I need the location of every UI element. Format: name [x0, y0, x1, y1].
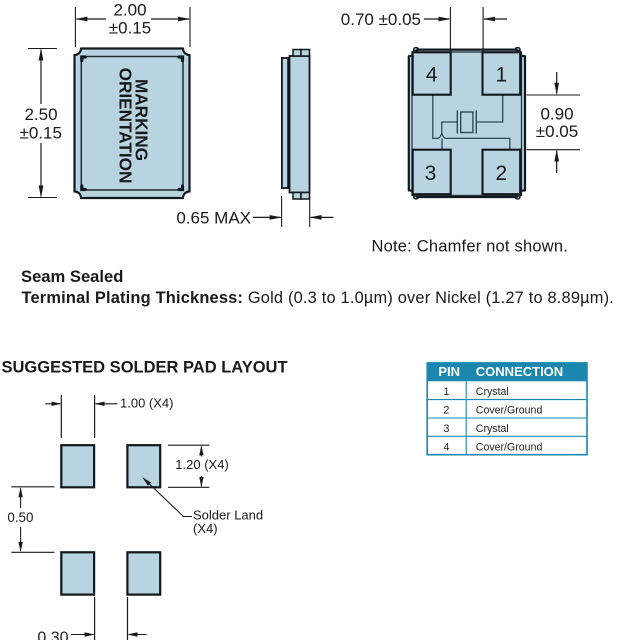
- svg-text:0.30: 0.30: [37, 630, 68, 640]
- svg-text:Terminal Plating Thickness: Go: Terminal Plating Thickness: Gold (0.3 to…: [22, 289, 615, 307]
- svg-text:1.00 (X4): 1.00 (X4): [120, 396, 173, 411]
- svg-text:1: 1: [444, 386, 450, 398]
- svg-text:2.00: 2.00: [113, 0, 146, 19]
- svg-text:2: 2: [495, 162, 507, 185]
- svg-text:1: 1: [495, 64, 507, 87]
- svg-text:±0.15: ±0.15: [19, 123, 61, 142]
- svg-text:0.90: 0.90: [540, 105, 573, 124]
- svg-text:0.65 MAX: 0.65 MAX: [176, 209, 251, 228]
- svg-text:2: 2: [444, 405, 450, 417]
- svg-text:CONNECTION: CONNECTION: [476, 364, 563, 379]
- svg-text:2.50: 2.50: [24, 105, 57, 124]
- svg-text:0.70 ±0.05: 0.70 ±0.05: [341, 10, 421, 29]
- svg-text:Cover/Ground: Cover/Ground: [476, 405, 543, 417]
- svg-text:3: 3: [444, 423, 450, 435]
- svg-text:(X4): (X4): [193, 521, 218, 536]
- svg-text:±0.15: ±0.15: [109, 18, 151, 37]
- svg-text:Crystal: Crystal: [476, 386, 509, 398]
- svg-text:3: 3: [425, 162, 437, 185]
- svg-text:PIN: PIN: [438, 364, 460, 379]
- svg-text:Note: Chamfer not shown.: Note: Chamfer not shown.: [372, 237, 568, 255]
- svg-text:Seam Sealed: Seam Sealed: [21, 267, 123, 286]
- svg-text:±0.05: ±0.05: [536, 122, 578, 141]
- svg-text:1.20 (X4): 1.20 (X4): [175, 457, 228, 472]
- svg-text:SUGGESTED SOLDER PAD LAYOUT: SUGGESTED SOLDER PAD LAYOUT: [2, 359, 288, 377]
- svg-text:4: 4: [444, 441, 450, 453]
- svg-text:Crystal: Crystal: [476, 423, 509, 435]
- svg-text:ORIENTATION: ORIENTATION: [116, 68, 136, 184]
- svg-text:0.50: 0.50: [7, 510, 33, 525]
- svg-text:4: 4: [426, 64, 438, 87]
- svg-text:Cover/Ground: Cover/Ground: [476, 441, 543, 453]
